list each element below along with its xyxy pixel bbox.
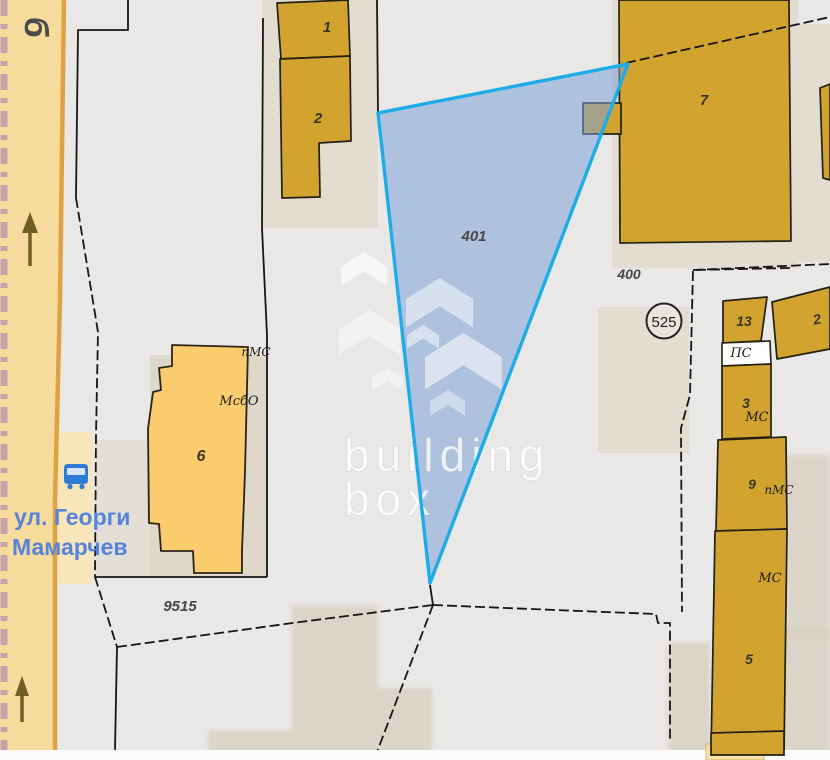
building-6-type2-label: МсбО <box>218 394 259 409</box>
building-5-type-label: МС <box>757 571 781 586</box>
building-3-type-label: МС <box>744 410 768 425</box>
building-3-label: 3 <box>742 395 750 411</box>
building-9-label: 9 <box>748 476 756 492</box>
building-1-label: 1 <box>323 19 331 36</box>
building-7-label: 7 <box>700 92 709 109</box>
parcel-401-label: 401 <box>460 228 486 245</box>
street-name-partial-char: б <box>16 15 56 39</box>
building-5-label: 5 <box>745 651 753 667</box>
parcel-400-label: 400 <box>616 266 641 282</box>
building-2-label: 2 <box>313 110 323 127</box>
building-ps-label: ПС <box>729 346 751 361</box>
building-5[interactable] <box>711 529 787 755</box>
building-13-label: 13 <box>736 313 752 329</box>
cadastral-map-canvas[interactable]: building box 525 1 2 7 13 2 3 МС 9 пМС М… <box>0 0 830 760</box>
building-1[interactable] <box>277 0 350 59</box>
building-7[interactable] <box>619 0 791 243</box>
parcel-9515-label: 9515 <box>163 598 197 615</box>
map-viewport[interactable]: building box 525 1 2 7 13 2 3 МС 9 пМС М… <box>0 0 830 760</box>
survey-point-label: 525 <box>651 314 676 331</box>
street-name-line1: ул. Георги <box>14 504 130 530</box>
building-9-type-label: пМС <box>764 483 793 497</box>
building-6-type1-label: пМС <box>241 345 270 359</box>
survey-point-525[interactable]: 525 <box>647 304 682 339</box>
building-6-label: 6 <box>197 448 206 465</box>
bottom-strip <box>0 750 830 760</box>
building-5-bottom[interactable] <box>711 731 784 755</box>
street-name-line2: Мамарчев <box>12 534 128 560</box>
